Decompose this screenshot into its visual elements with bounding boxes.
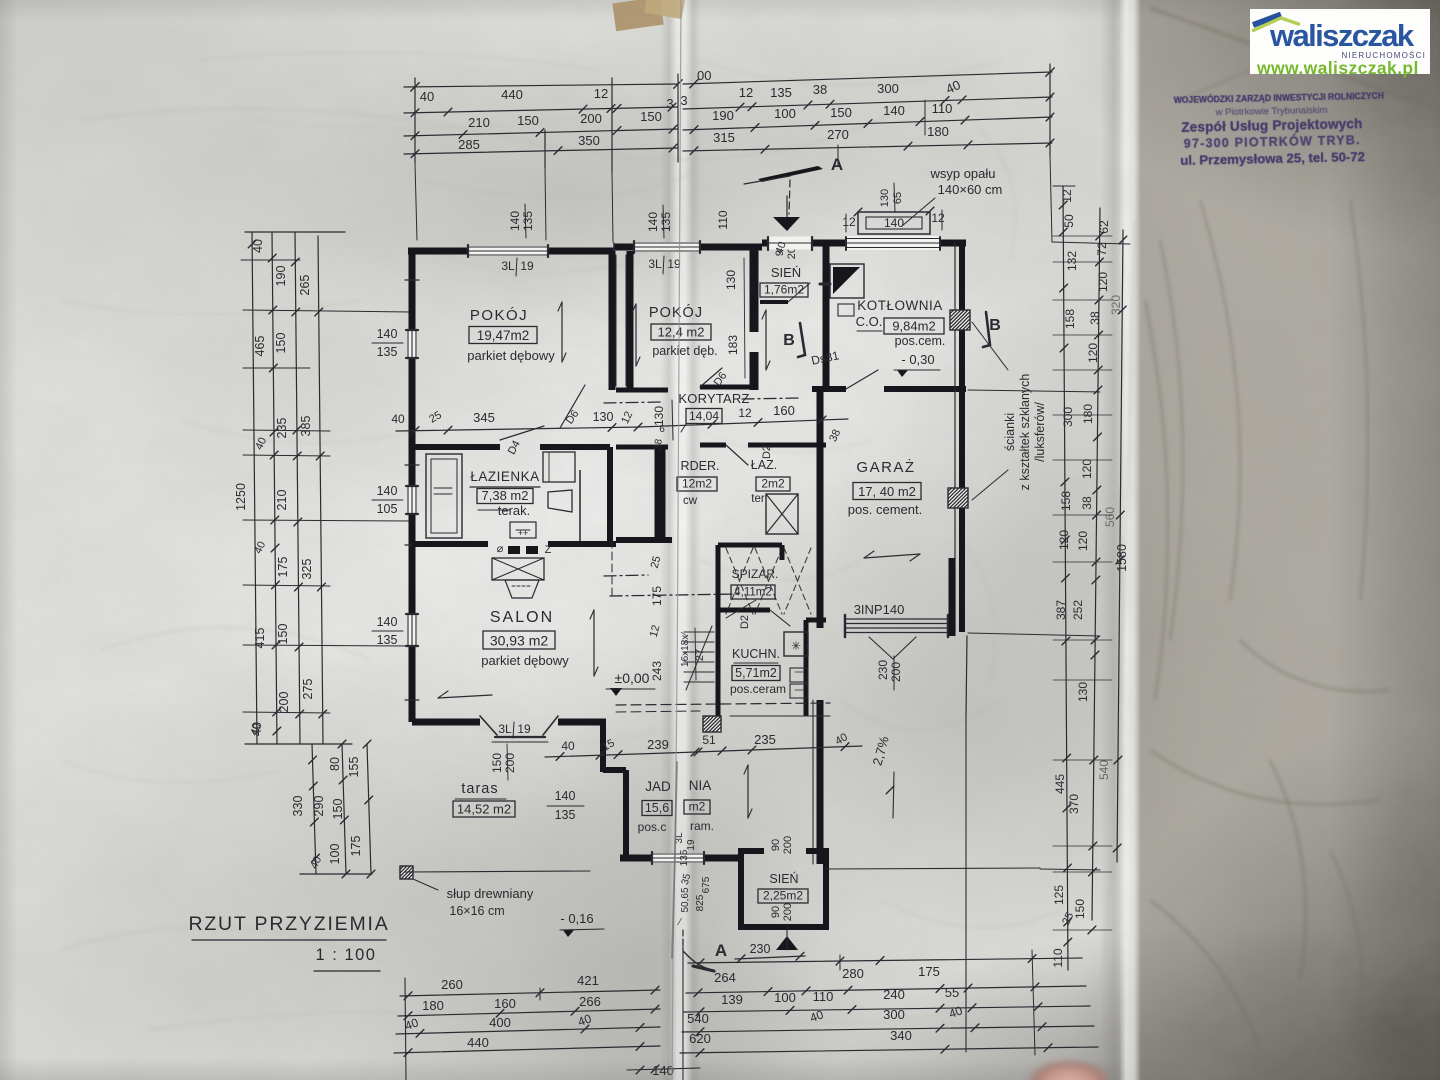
- svg-text:z kształtek szklanych: z kształtek szklanych: [1018, 374, 1032, 491]
- svg-text:40: 40: [391, 412, 405, 426]
- svg-text:38: 38: [1080, 496, 1094, 510]
- svg-text:150: 150: [331, 799, 345, 820]
- svg-text:140: 140: [555, 789, 576, 803]
- svg-text:65: 65: [892, 192, 904, 204]
- svg-text:3INP140: 3INP140: [854, 602, 905, 617]
- svg-text:135: 135: [679, 849, 690, 866]
- svg-text:12: 12: [738, 406, 752, 420]
- svg-text:12: 12: [931, 211, 945, 225]
- svg-text:290: 290: [312, 796, 326, 817]
- svg-text:200: 200: [782, 836, 794, 854]
- svg-text:RDER.: RDER.: [681, 459, 720, 473]
- svg-text:GARAŻ: GARAŻ: [856, 458, 915, 476]
- svg-text:ŁAZIENKA: ŁAZIENKA: [470, 469, 539, 484]
- svg-text:285: 285: [458, 137, 480, 152]
- svg-text:KORYTARZ: KORYTARZ: [678, 391, 749, 406]
- svg-text:3: 3: [666, 96, 673, 111]
- svg-text:110: 110: [932, 101, 953, 116]
- svg-text:pos.c: pos.c: [638, 820, 667, 834]
- svg-text:440: 440: [501, 87, 523, 102]
- svg-text:140: 140: [377, 327, 398, 341]
- svg-text:16x18x⁄: 16x18x⁄: [680, 632, 691, 667]
- svg-text:A: A: [715, 941, 727, 960]
- svg-text:taras: taras: [461, 781, 498, 797]
- svg-text:200: 200: [580, 111, 602, 126]
- svg-text:140: 140: [884, 216, 904, 230]
- svg-text:⌀: ⌀: [497, 543, 504, 555]
- svg-text:62: 62: [1097, 220, 1111, 234]
- svg-text:D2: D2: [739, 615, 751, 629]
- svg-text:ter: ter: [751, 493, 765, 505]
- svg-text:A: A: [831, 155, 843, 174]
- svg-text:150: 150: [640, 109, 662, 124]
- svg-text:270: 270: [827, 127, 849, 142]
- svg-text:260: 260: [441, 977, 463, 992]
- svg-text:2m2: 2m2: [761, 477, 785, 491]
- svg-text:345: 345: [473, 410, 495, 425]
- svg-text:400: 400: [489, 1015, 511, 1030]
- svg-text:ŁAZ.: ŁAZ.: [751, 458, 777, 472]
- svg-text:POKÓJ: POKÓJ: [649, 304, 703, 321]
- svg-text:NIA: NIA: [689, 778, 712, 793]
- svg-text:m2: m2: [689, 800, 706, 814]
- svg-text:100: 100: [774, 990, 796, 1005]
- svg-text:387: 387: [1054, 600, 1068, 620]
- svg-text:38: 38: [1088, 311, 1102, 325]
- svg-text:130: 130: [652, 406, 666, 426]
- svg-text:158: 158: [1063, 309, 1077, 329]
- svg-text:16×16 cm: 16×16 cm: [449, 904, 504, 918]
- svg-text:4,11m2: 4,11m2: [734, 587, 772, 599]
- svg-text:140: 140: [883, 103, 905, 118]
- svg-text:19: 19: [686, 839, 697, 851]
- svg-text:421: 421: [577, 973, 599, 988]
- svg-text:200: 200: [503, 753, 517, 773]
- svg-text:14,52 m2: 14,52 m2: [457, 802, 511, 817]
- svg-text:1,76m2: 1,76m2: [764, 283, 804, 297]
- svg-text:135: 135: [659, 212, 673, 232]
- svg-text:KOTŁOWNIA: KOTŁOWNIA: [857, 298, 943, 313]
- svg-text:cw: cw: [683, 495, 698, 507]
- svg-text:SIEŃ: SIEŃ: [769, 871, 798, 886]
- svg-text:230: 230: [876, 660, 890, 680]
- svg-text:- 0,30: - 0,30: [901, 352, 934, 367]
- svg-text:++: ++: [518, 528, 529, 538]
- svg-text:120: 120: [1057, 530, 1071, 550]
- svg-text:105: 105: [377, 502, 398, 516]
- svg-text:55: 55: [945, 985, 959, 1000]
- svg-text:175: 175: [650, 586, 664, 606]
- svg-text:15,6: 15,6: [645, 801, 669, 815]
- svg-text:pos.ceram: pos.ceram: [730, 682, 786, 696]
- svg-text:12: 12: [842, 215, 856, 229]
- svg-text:120: 120: [1086, 343, 1100, 363]
- svg-text:264: 264: [714, 970, 736, 985]
- svg-text:340: 340: [890, 1028, 912, 1043]
- svg-text:pos.cem.: pos.cem.: [895, 334, 946, 348]
- svg-text:140: 140: [377, 615, 398, 629]
- svg-text:675: 675: [701, 876, 712, 893]
- svg-text:150: 150: [830, 105, 852, 120]
- svg-text:POKÓJ: POKÓJ: [470, 307, 528, 324]
- svg-text:230: 230: [750, 942, 771, 956]
- svg-text:320: 320: [1109, 295, 1123, 315]
- svg-text:445: 445: [1053, 774, 1067, 794]
- svg-text:12: 12: [594, 86, 608, 101]
- svg-text:243: 243: [650, 661, 664, 681]
- svg-text:110: 110: [716, 210, 730, 229]
- svg-text:135: 135: [555, 808, 576, 822]
- svg-text:210: 210: [468, 115, 490, 130]
- svg-text:120: 120: [1080, 459, 1094, 479]
- svg-text:266: 266: [579, 994, 601, 1009]
- svg-text:1250: 1250: [234, 483, 248, 511]
- svg-text:130: 130: [1076, 682, 1090, 702]
- svg-text:JAD: JAD: [645, 779, 671, 794]
- svg-text:1580: 1580: [1115, 544, 1129, 572]
- svg-text:160: 160: [773, 403, 795, 418]
- svg-text:158: 158: [1059, 491, 1073, 511]
- svg-text:6: 6: [659, 424, 665, 435]
- svg-text:3: 3: [680, 93, 687, 108]
- svg-text:350: 350: [578, 133, 600, 148]
- svg-text:14,04: 14,04: [689, 409, 719, 423]
- svg-text:620: 620: [689, 1031, 711, 1046]
- svg-text:180: 180: [422, 998, 444, 1013]
- svg-text:19,47m2: 19,47m2: [477, 328, 530, 343]
- svg-text:300: 300: [877, 81, 899, 96]
- svg-text:17, 40 m2: 17, 40 m2: [858, 484, 916, 499]
- svg-text:190: 190: [712, 108, 734, 123]
- svg-text:240: 240: [883, 987, 905, 1002]
- svg-text:180: 180: [1081, 404, 1095, 424]
- svg-text:235: 235: [275, 418, 289, 439]
- svg-text:385: 385: [299, 416, 313, 437]
- svg-text:415: 415: [253, 628, 267, 649]
- svg-text:140: 140: [377, 484, 398, 498]
- svg-text:1 : 100: 1 : 100: [316, 946, 377, 964]
- svg-text:ram.: ram.: [690, 819, 714, 833]
- svg-text:- 0,16: - 0,16: [560, 911, 593, 926]
- svg-text:325: 325: [300, 559, 314, 580]
- svg-text:C.O.: C.O.: [856, 314, 883, 329]
- svg-text:370: 370: [1067, 794, 1081, 814]
- svg-text:132: 132: [1065, 251, 1079, 271]
- svg-text:200: 200: [782, 903, 794, 921]
- svg-text:139: 139: [721, 992, 743, 1007]
- svg-text:12: 12: [739, 85, 753, 100]
- svg-text:00: 00: [697, 68, 711, 83]
- svg-text:51: 51: [702, 733, 716, 747]
- svg-text:parkiet dębowy: parkiet dębowy: [481, 653, 569, 668]
- svg-text:100: 100: [774, 106, 796, 121]
- svg-text:300: 300: [883, 1007, 905, 1022]
- svg-text:140: 140: [508, 211, 522, 231]
- svg-text:✳: ✳: [791, 639, 801, 653]
- svg-text:40: 40: [251, 239, 265, 253]
- svg-text:135: 135: [521, 211, 535, 231]
- svg-text:150: 150: [276, 624, 290, 645]
- svg-text:90: 90: [770, 906, 782, 918]
- svg-text:7,38 m2: 7,38 m2: [482, 488, 529, 503]
- svg-text:19: 19: [517, 722, 531, 736]
- svg-text:183: 183: [726, 335, 740, 355]
- svg-text:120: 120: [1096, 272, 1110, 292]
- svg-text:9,84m2: 9,84m2: [892, 319, 935, 334]
- svg-text:135: 135: [377, 633, 398, 647]
- svg-text:12: 12: [1060, 189, 1074, 203]
- svg-text:72: 72: [1095, 242, 1109, 256]
- svg-text:130: 130: [724, 270, 738, 290]
- svg-text:130: 130: [593, 410, 614, 424]
- svg-text:D2: D2: [761, 445, 773, 459]
- svg-text:330: 330: [291, 796, 305, 817]
- svg-text:175: 175: [276, 557, 290, 578]
- svg-text:3L: 3L: [501, 259, 515, 273]
- svg-text:50: 50: [1062, 214, 1076, 228]
- svg-text:parkiet dębowy: parkiet dębowy: [467, 348, 555, 363]
- svg-text:239: 239: [647, 737, 669, 752]
- svg-text:140: 140: [646, 212, 660, 232]
- svg-text:40: 40: [561, 739, 575, 753]
- svg-text:40: 40: [420, 89, 434, 104]
- svg-text:120: 120: [1076, 531, 1090, 551]
- svg-text:3L: 3L: [648, 257, 662, 271]
- svg-text:155: 155: [347, 757, 361, 778]
- svg-text:440: 440: [467, 1035, 489, 1050]
- svg-text:275: 275: [301, 679, 315, 700]
- svg-text:150: 150: [274, 333, 288, 354]
- svg-text:825: 825: [695, 894, 706, 911]
- svg-text:200: 200: [889, 662, 903, 682]
- svg-text:190: 190: [274, 266, 288, 287]
- svg-text:150: 150: [490, 753, 504, 773]
- svg-text:200: 200: [277, 692, 291, 713]
- svg-text:ścianki: ścianki: [1003, 413, 1017, 451]
- svg-text:280: 280: [842, 966, 864, 981]
- svg-text:/luksferów/: /luksferów/: [1033, 402, 1047, 462]
- svg-text:38: 38: [813, 82, 827, 97]
- svg-text:±0,00: ±0,00: [615, 670, 650, 686]
- svg-text:SALON: SALON: [490, 609, 554, 626]
- svg-text:12,4 m2: 12,4 m2: [658, 325, 705, 340]
- svg-text:180: 180: [927, 124, 949, 139]
- svg-text:160: 160: [494, 996, 516, 1011]
- svg-text:140: 140: [652, 1063, 674, 1078]
- svg-text:wsyp opału: wsyp opału: [929, 166, 995, 181]
- svg-text:Z: Z: [545, 544, 552, 556]
- svg-text:540: 540: [1097, 760, 1111, 780]
- svg-text:265: 265: [298, 275, 312, 296]
- svg-text:SPIZAR.: SPIZAR.: [732, 567, 779, 581]
- svg-text:90: 90: [770, 839, 782, 851]
- svg-text:pos. cement.: pos. cement.: [848, 502, 922, 517]
- svg-text:465: 465: [253, 336, 267, 357]
- svg-text:150: 150: [517, 113, 539, 128]
- svg-text:540: 540: [687, 1011, 709, 1026]
- svg-text:50,65: 50,65: [680, 887, 691, 912]
- svg-text:252: 252: [1071, 600, 1085, 620]
- svg-text:12m2: 12m2: [682, 477, 712, 491]
- svg-text:135: 135: [377, 345, 398, 359]
- svg-text:560: 560: [1103, 507, 1117, 527]
- svg-text:80: 80: [328, 757, 342, 771]
- svg-text:235: 235: [754, 732, 776, 747]
- svg-text:parkiet dęb.: parkiet dęb.: [652, 344, 717, 358]
- svg-text:175: 175: [349, 836, 363, 857]
- svg-text:RZUT PRZYZIEMIA: RZUT PRZYZIEMIA: [188, 913, 389, 935]
- svg-text:300: 300: [1061, 407, 1075, 427]
- svg-text:130: 130: [879, 189, 891, 207]
- svg-text:5,71m2: 5,71m2: [735, 666, 777, 680]
- svg-text:3L: 3L: [498, 722, 512, 736]
- svg-text:210: 210: [275, 490, 289, 511]
- svg-text:110: 110: [813, 989, 834, 1004]
- svg-text:125: 125: [1052, 885, 1066, 905]
- svg-text:140×60 cm: 140×60 cm: [938, 182, 1003, 197]
- svg-text:315: 315: [713, 130, 735, 145]
- svg-text:2,25m2: 2,25m2: [763, 889, 803, 903]
- svg-text:19: 19: [520, 259, 534, 273]
- svg-text:135: 135: [770, 85, 792, 100]
- svg-text:175: 175: [918, 964, 940, 979]
- svg-text:słup drewniany: słup drewniany: [447, 886, 534, 901]
- svg-text:SIEŃ: SIEŃ: [771, 265, 801, 280]
- svg-text:B: B: [989, 317, 1001, 334]
- svg-text:KUCHN.: KUCHN.: [732, 647, 780, 661]
- svg-text:30,93 m2: 30,93 m2: [490, 633, 549, 649]
- svg-text:100: 100: [328, 844, 342, 865]
- svg-text:B: B: [783, 332, 795, 349]
